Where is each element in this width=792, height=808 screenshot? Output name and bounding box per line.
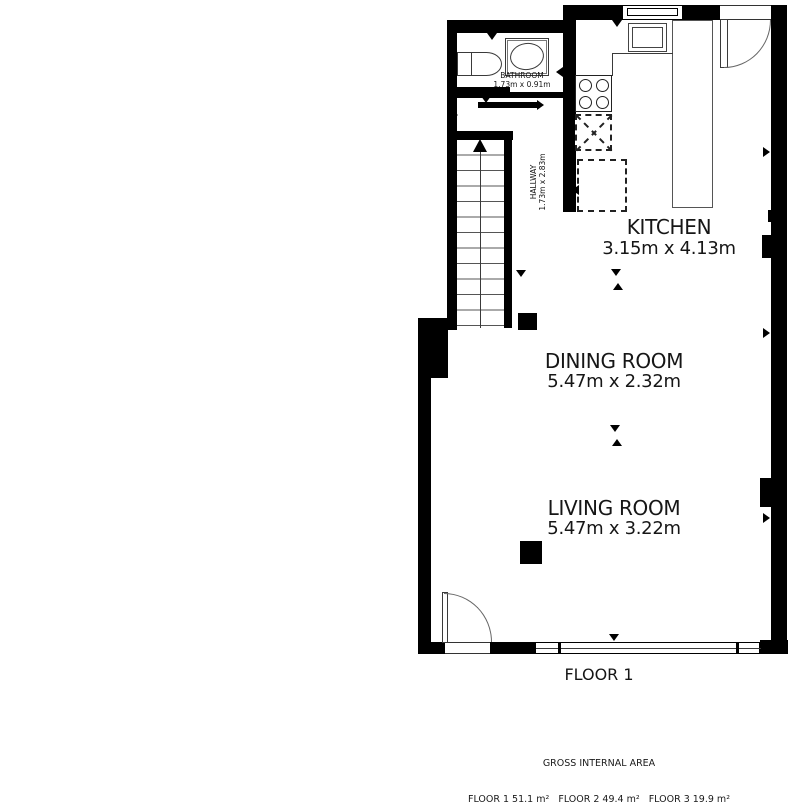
dining-room-dims: 5.47m x 2.32m <box>547 371 680 392</box>
opening-tick-icon <box>487 33 497 40</box>
wall-stairs-right <box>504 140 512 328</box>
wall-left-corner-block <box>418 318 448 378</box>
wall-kitchen-top-mid <box>683 5 720 20</box>
fridge-dashed <box>577 159 627 212</box>
opening-tick-icon <box>572 185 579 195</box>
wall-right <box>771 5 787 654</box>
door-arc-kitchen <box>724 20 771 68</box>
opening-tick-icon <box>763 328 770 338</box>
stove-hob <box>575 75 612 112</box>
sliding-door-arrow-icon <box>537 100 544 110</box>
opening-tick-icon <box>763 147 770 157</box>
floor-plan-canvas: KITCHEN 3.15m x 4.13m DINING ROOM 5.47m … <box>0 0 792 808</box>
opening-tick-icon <box>612 20 622 27</box>
burner-icon <box>579 96 592 109</box>
wall-bottom-mid-seg <box>490 642 535 654</box>
sliding-door-panel-a <box>510 92 576 98</box>
wall-stub-right-small <box>768 210 772 222</box>
staircase-up-arrow-icon <box>473 139 487 152</box>
opening-tick-icon <box>481 96 491 103</box>
toilet-cistern <box>457 52 472 76</box>
opening-tick-icon <box>610 425 620 432</box>
wall-stub-right-kitchen <box>762 235 771 258</box>
column-living-room <box>520 541 542 564</box>
wall-bathroom-top <box>447 20 563 33</box>
window-kitchen-top-inner <box>627 8 678 16</box>
counter-edge-left <box>612 53 613 76</box>
window-kitchen-top <box>622 5 683 20</box>
hallway-label-group: HALLWAY 1.73m x 2.83m <box>529 142 549 222</box>
burner-icon <box>579 79 592 92</box>
living-room-label: LIVING ROOM <box>548 496 681 520</box>
gross-internal-area-title: GROSS INTERNAL AREA <box>403 758 792 770</box>
bathroom-dims: 1.73m x 0.91m <box>493 80 550 89</box>
counter-edge-top <box>612 53 673 54</box>
opening-tick-icon <box>450 67 457 77</box>
opening-tick-icon <box>556 67 563 77</box>
toilet-bowl <box>471 52 502 76</box>
opening-tick-icon <box>451 110 458 120</box>
kitchen-label: KITCHEN <box>627 215 712 239</box>
opening-tick-icon <box>612 439 622 446</box>
wall-bottom-right-corner <box>760 640 788 654</box>
opening-tick-icon <box>613 283 623 290</box>
window-bottom-divider-2 <box>736 643 739 653</box>
kitchen-dims: 3.15m x 4.13m <box>602 238 735 259</box>
kitchen-counter-peninsula <box>672 20 713 208</box>
bathroom-label: BATHROOM <box>500 71 543 80</box>
kitchen-sink-inner <box>632 27 663 48</box>
floor-areas-line: FLOOR 1 51.1 m² FLOOR 2 49.4 m² FLOOR 3 … <box>403 794 792 806</box>
window-bottom-divider-1 <box>558 643 561 653</box>
opening-tick-icon <box>611 269 621 276</box>
opening-tick-icon <box>516 270 526 277</box>
hallway-dims: 1.73m x 2.83m <box>538 142 547 222</box>
floor-title: FLOOR 1 <box>564 665 633 684</box>
hallway-label: HALLWAY <box>529 142 538 222</box>
opening-tick-icon <box>424 395 431 405</box>
wall-stub-right-living <box>760 478 771 507</box>
dining-room-label: DINING ROOM <box>545 349 683 373</box>
dishwasher-dashed <box>575 114 612 151</box>
window-living-bottom <box>535 642 760 654</box>
door-opening-living <box>445 642 490 654</box>
door-arc-living <box>444 593 492 642</box>
area-summary: GROSS INTERNAL AREA FLOOR 1 51.1 m² FLOO… <box>403 734 792 808</box>
wall-stub-hallway <box>518 313 537 330</box>
window-bottom-midline <box>536 648 761 649</box>
living-room-dims: 5.47m x 3.22m <box>547 518 680 539</box>
opening-tick-icon <box>763 513 770 523</box>
burner-icon <box>596 79 609 92</box>
staircase-center-line <box>480 146 481 328</box>
burner-icon <box>596 96 609 109</box>
kitchen-sink <box>628 23 667 52</box>
door-opening-kitchen <box>720 5 771 20</box>
opening-tick-icon <box>609 634 619 641</box>
